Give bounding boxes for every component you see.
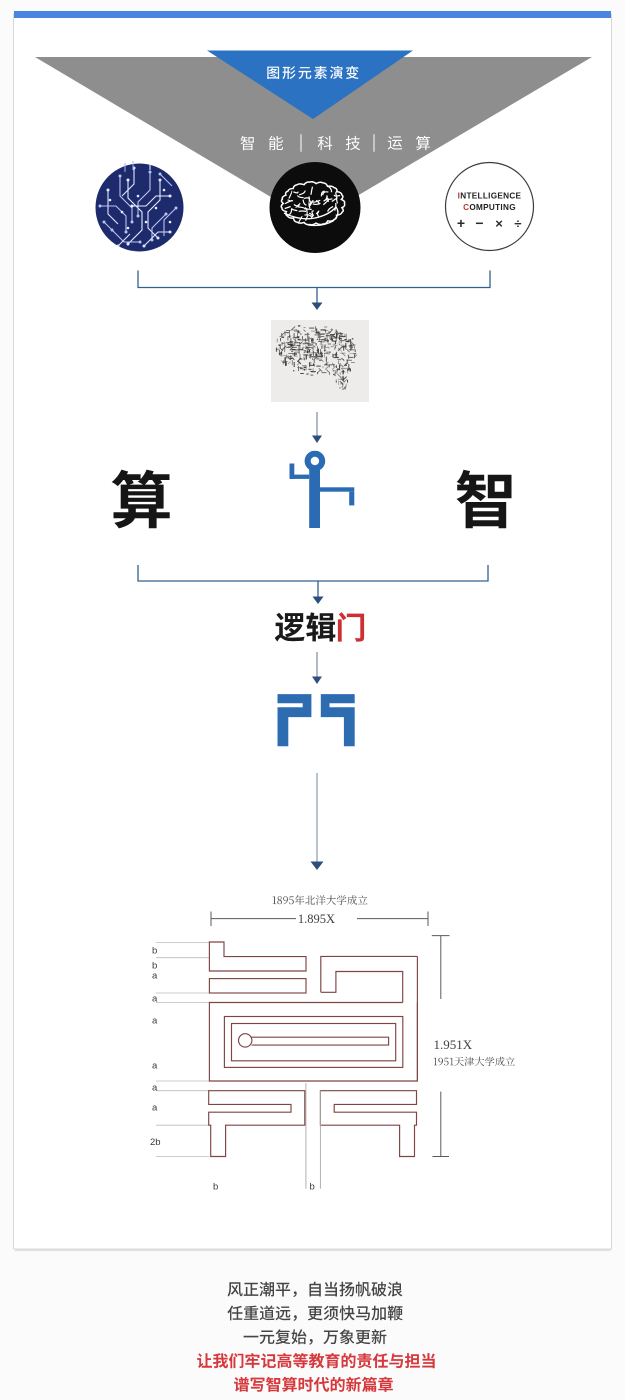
- svg-text:a: a: [152, 1016, 158, 1027]
- svg-text:a: a: [152, 1083, 158, 1094]
- svg-text:1.951X: 1.951X: [434, 1037, 473, 1052]
- svg-text:a: a: [152, 1061, 158, 1072]
- svg-text:INTELLIGENCE: INTELLIGENCE: [458, 192, 522, 201]
- svg-text:+: +: [457, 215, 465, 231]
- svg-text:a: a: [152, 994, 158, 1005]
- svg-text:2b: 2b: [150, 1137, 161, 1148]
- svg-text:a: a: [152, 971, 158, 982]
- svg-text:COMPUTING: COMPUTING: [463, 203, 516, 212]
- svg-text:×: ×: [495, 216, 503, 231]
- svg-text:b: b: [152, 946, 157, 957]
- svg-text:−: −: [475, 215, 483, 231]
- svg-text:b: b: [310, 1182, 315, 1193]
- svg-text:b: b: [213, 1182, 218, 1193]
- svg-text:1.895X: 1.895X: [298, 912, 335, 926]
- svg-text:÷: ÷: [514, 216, 521, 231]
- svg-text:a: a: [152, 1103, 158, 1114]
